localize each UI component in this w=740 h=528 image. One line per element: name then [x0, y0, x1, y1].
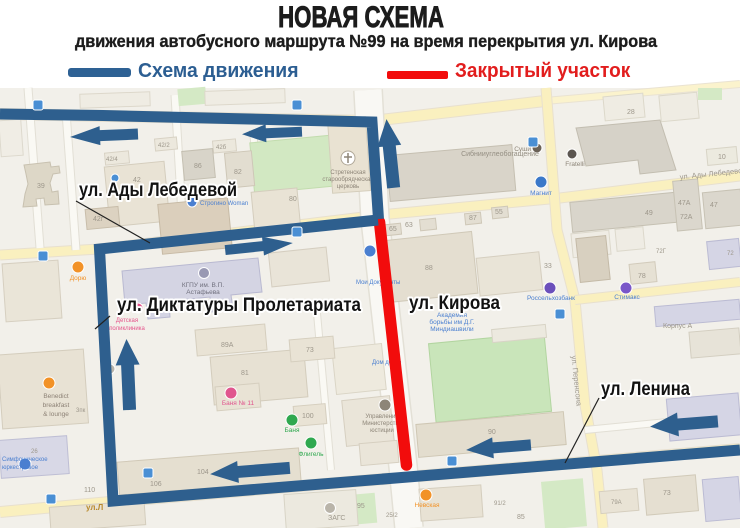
- svg-text:борьбы им Д.Г.: борьбы им Д.Г.: [429, 318, 474, 326]
- svg-text:Магнит: Магнит: [530, 190, 552, 197]
- svg-text:88: 88: [425, 265, 433, 272]
- svg-text:89А: 89А: [221, 342, 234, 349]
- svg-text:85: 85: [517, 514, 525, 521]
- svg-text:breakfast: breakfast: [43, 402, 70, 409]
- svg-text:65: 65: [389, 226, 397, 233]
- svg-text:28: 28: [627, 109, 635, 116]
- svg-text:47А: 47А: [678, 200, 691, 207]
- svg-text:Сибнииуглеобогащение: Сибнииуглеобогащение: [461, 150, 539, 158]
- svg-text:Флигель: Флигель: [299, 451, 325, 458]
- svg-text:& lounge: & lounge: [43, 411, 69, 418]
- svg-text:25/2: 25/2: [386, 513, 398, 519]
- svg-text:42б: 42б: [216, 145, 227, 151]
- svg-text:91/2: 91/2: [494, 501, 506, 507]
- svg-text:ул. Ленина: ул. Ленина: [601, 378, 690, 400]
- svg-text:80: 80: [289, 196, 297, 203]
- svg-text:79А: 79А: [611, 500, 622, 506]
- svg-text:90: 90: [488, 429, 496, 436]
- svg-text:49: 49: [645, 210, 653, 217]
- svg-text:95: 95: [357, 503, 365, 510]
- svg-text:72Г: 72Г: [656, 249, 667, 255]
- svg-text:Управление: Управление: [365, 414, 399, 420]
- svg-text:63: 63: [405, 222, 413, 229]
- svg-text:старообрядческая: старообрядческая: [322, 177, 373, 183]
- svg-text:Дорю: Дорю: [70, 275, 87, 282]
- svg-text:42г: 42г: [93, 216, 104, 223]
- svg-text:Миндиашвили: Миндиашвили: [430, 326, 474, 333]
- svg-text:55: 55: [495, 209, 503, 216]
- svg-text:Симфоническое: Симфоническое: [2, 457, 48, 463]
- svg-text:33: 33: [544, 263, 552, 270]
- svg-text:Benedict: Benedict: [43, 393, 68, 400]
- svg-text:Невская: Невская: [414, 502, 440, 509]
- svg-text:юркестровое: юркестровое: [2, 465, 39, 471]
- svg-text:Баня: Баня: [285, 427, 300, 434]
- svg-text:церковь: церковь: [337, 184, 359, 190]
- svg-text:КГПУ им. В.П.: КГПУ им. В.П.: [182, 282, 224, 289]
- svg-text:3пк: 3пк: [76, 408, 86, 414]
- svg-text:ул. Ады Лебедевой: ул. Ады Лебедевой: [79, 179, 237, 201]
- svg-text:72А: 72А: [680, 214, 693, 221]
- svg-text:Строгино Woman: Строгино Woman: [200, 201, 248, 207]
- svg-text:82: 82: [234, 169, 242, 176]
- svg-text:ул. Кирова: ул. Кирова: [409, 292, 500, 314]
- svg-text:Корпус А: Корпус А: [663, 323, 693, 330]
- svg-text:100: 100: [302, 413, 314, 420]
- svg-text:110: 110: [84, 487, 95, 494]
- svg-text:104: 104: [197, 469, 209, 476]
- svg-text:ул.Л: ул.Л: [86, 503, 104, 512]
- svg-text:26: 26: [31, 449, 38, 455]
- svg-text:Fratelli: Fratelli: [565, 161, 585, 168]
- svg-text:72: 72: [727, 251, 734, 257]
- svg-text:73: 73: [663, 490, 671, 497]
- svg-text:87: 87: [469, 215, 477, 222]
- svg-text:106: 106: [150, 481, 162, 488]
- svg-text:ЗАГС: ЗАГС: [328, 515, 345, 522]
- svg-text:42/4: 42/4: [106, 157, 118, 163]
- svg-text:73: 73: [306, 347, 314, 354]
- svg-text:Детская: Детская: [116, 318, 138, 324]
- svg-text:10: 10: [718, 154, 726, 161]
- svg-text:47: 47: [710, 202, 718, 209]
- svg-text:поликлиника: поликлиника: [109, 326, 145, 332]
- svg-text:78: 78: [638, 273, 646, 280]
- svg-text:Стимакс: Стимакс: [614, 294, 640, 301]
- svg-text:Россельхозбанк: Россельхозбанк: [527, 294, 575, 302]
- svg-text:ул. Диктатуры Пролетариата: ул. Диктатуры Пролетариата: [117, 294, 361, 316]
- svg-text:Баня № 11: Баня № 11: [222, 400, 255, 407]
- svg-text:39: 39: [37, 183, 45, 190]
- svg-text:Мои Документы: Мои Документы: [356, 280, 400, 286]
- svg-text:86: 86: [194, 163, 202, 170]
- svg-text:юстиции: юстиции: [370, 428, 394, 434]
- svg-text:81: 81: [241, 370, 249, 377]
- svg-text:Стретенская: Стретенская: [330, 170, 365, 176]
- svg-text:42/2: 42/2: [158, 143, 170, 149]
